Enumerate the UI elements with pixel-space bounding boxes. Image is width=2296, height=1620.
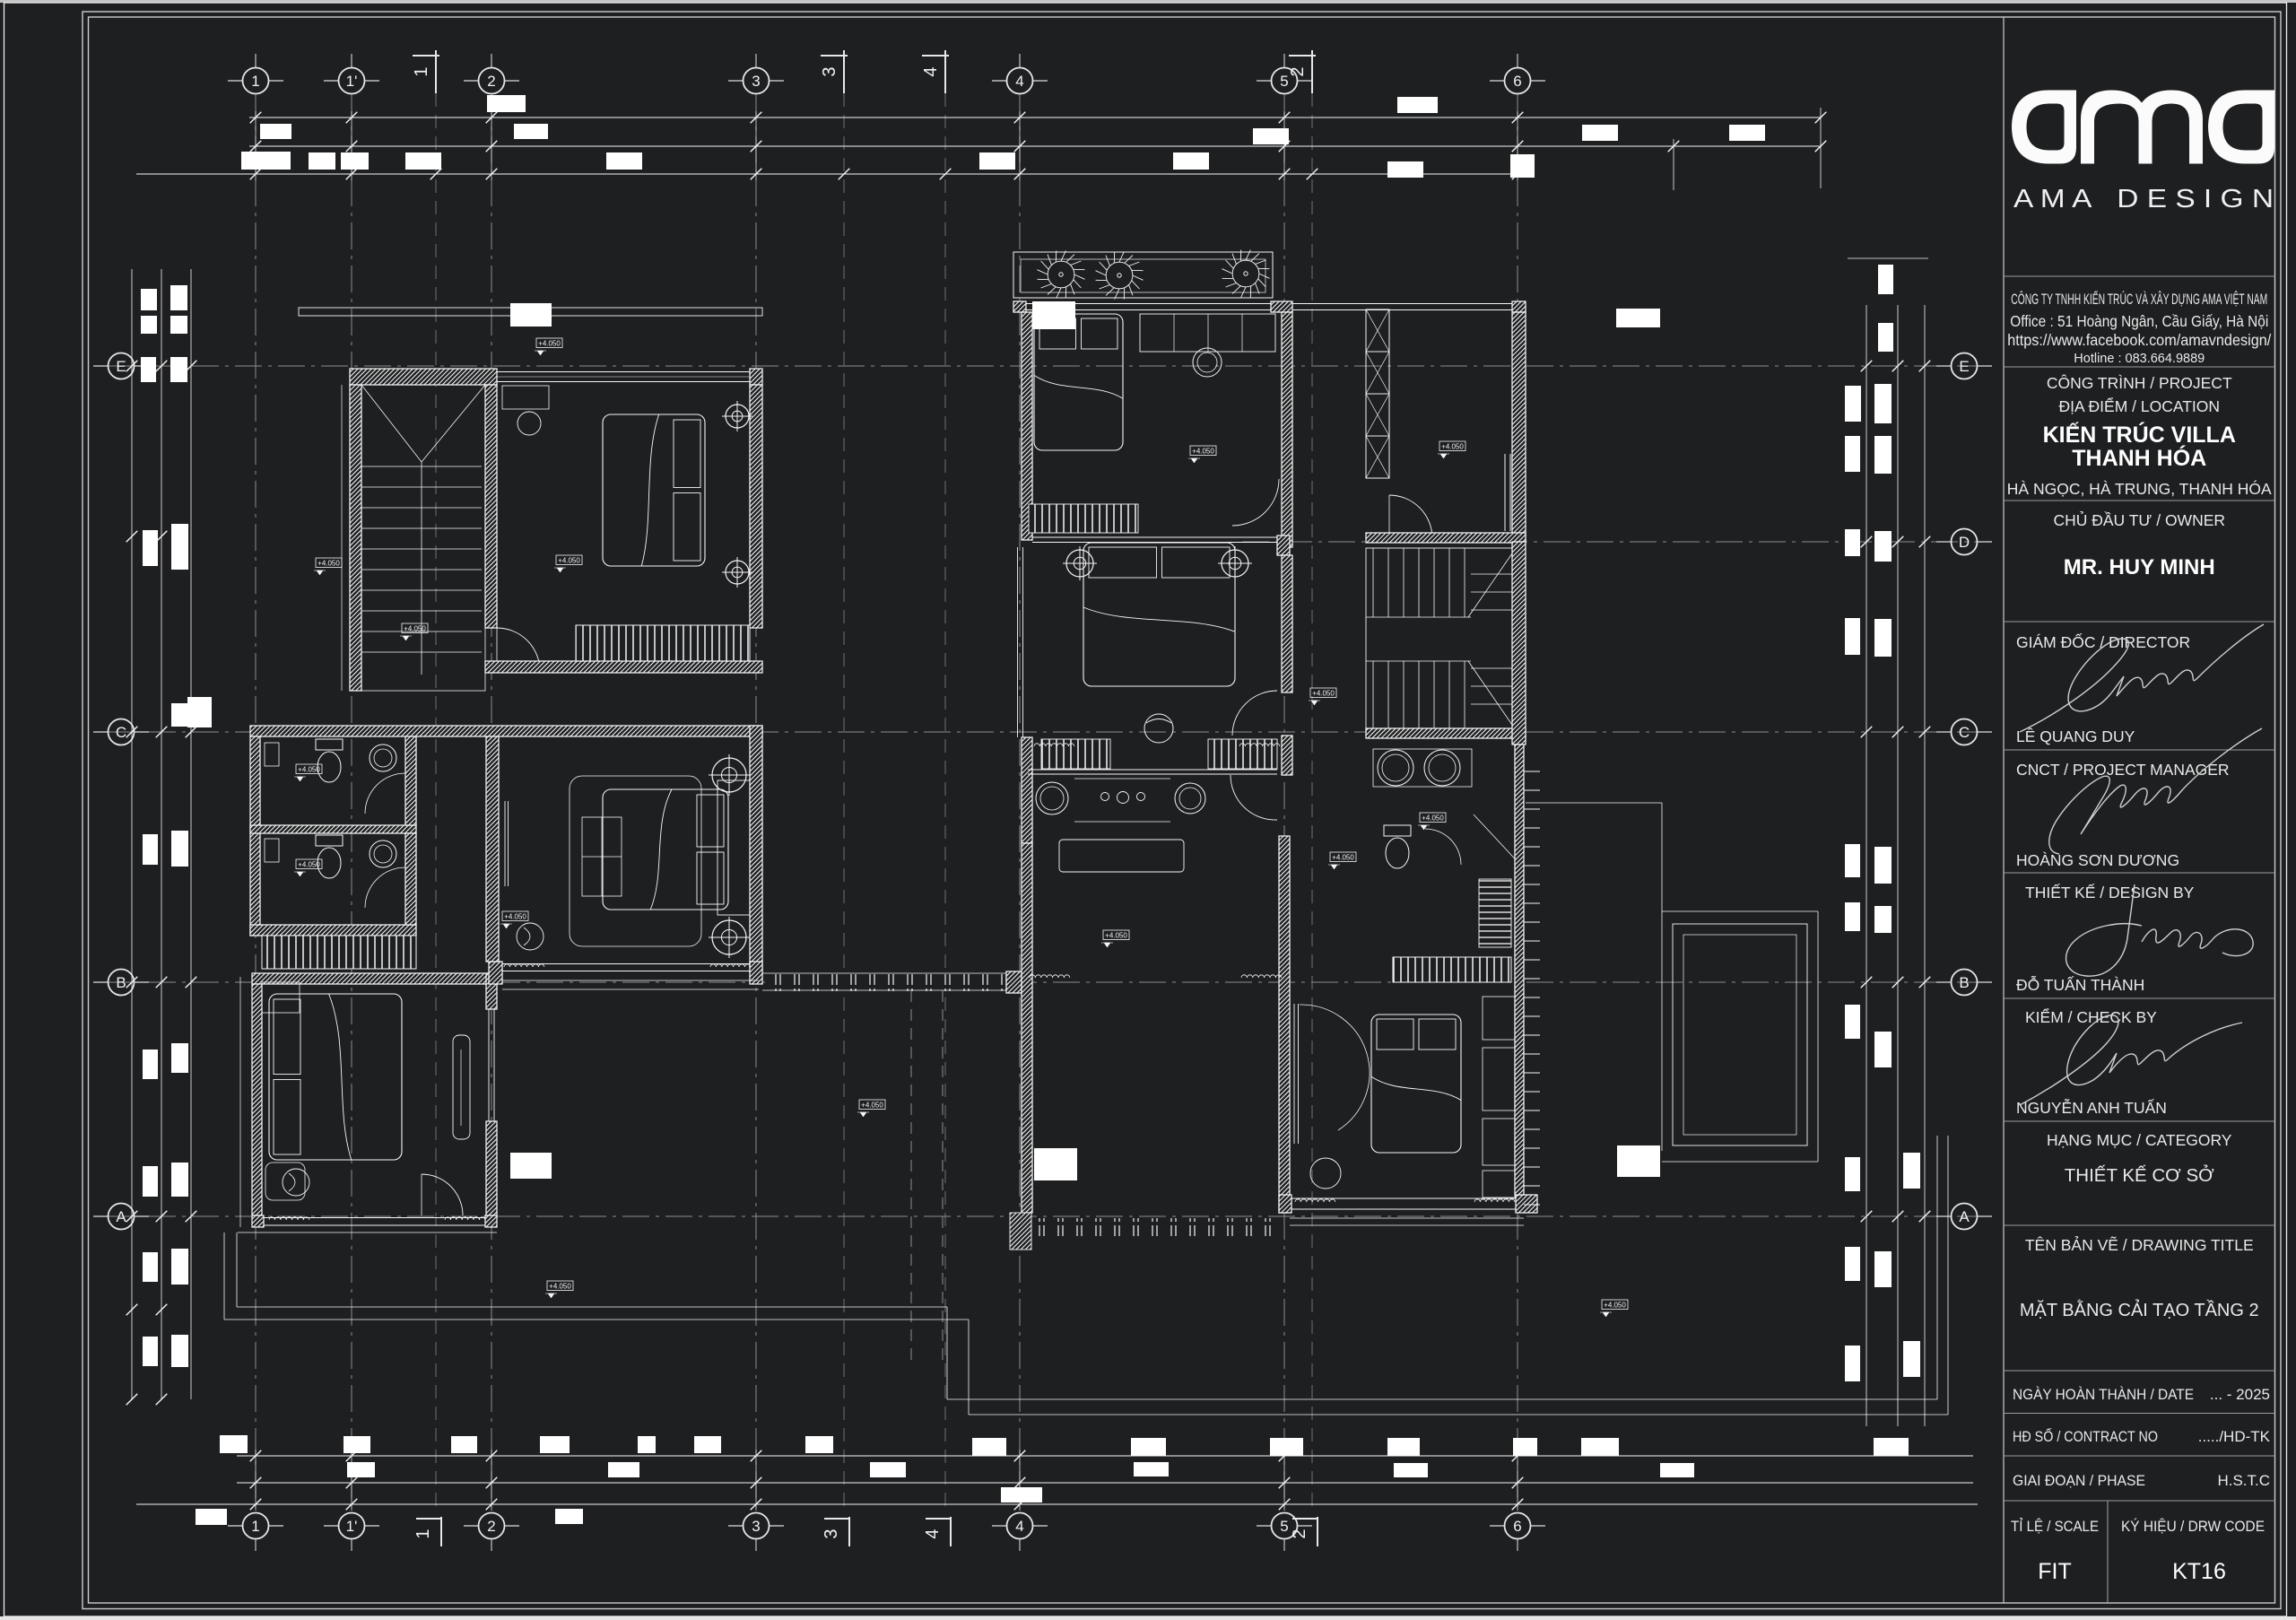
- svg-text:+4.050: +4.050: [404, 625, 426, 633]
- svg-text:C: C: [1959, 724, 1970, 741]
- svg-text:HOÀNG SƠN DƯƠNG: HOÀNG SƠN DƯƠNG: [2016, 851, 2179, 869]
- svg-text:2: 2: [487, 73, 495, 90]
- svg-text:4: 4: [1015, 73, 1023, 90]
- svg-text:https://www.facebook.com/amavn: https://www.facebook.com/amavndesign/: [2007, 331, 2271, 349]
- svg-text:5: 5: [1280, 1518, 1288, 1535]
- svg-text:1: 1: [413, 1529, 433, 1538]
- svg-text:+4.050: +4.050: [558, 557, 580, 565]
- svg-text:6: 6: [1513, 73, 1521, 90]
- svg-text:1: 1: [251, 1518, 259, 1535]
- svg-text:+4.050: +4.050: [1332, 854, 1354, 862]
- svg-text:1: 1: [412, 66, 431, 76]
- svg-text:MR. HUY MINH: MR. HUY MINH: [2064, 555, 2215, 579]
- svg-text:CÔNG TRÌNH / PROJECT: CÔNG TRÌNH / PROJECT: [2047, 373, 2232, 392]
- svg-text:CÔNG TY TNHH KIẾN TRÚC VÀ XÂY: CÔNG TY TNHH KIẾN TRÚC VÀ XÂY DỰNG AMA V…: [2011, 291, 2267, 308]
- svg-text:B: B: [1959, 974, 1969, 991]
- svg-text:Hotline : 083.664.9889: Hotline : 083.664.9889: [2074, 352, 2205, 366]
- svg-text:+4.050: +4.050: [317, 560, 340, 568]
- svg-text:CHỦ ĐẦU TƯ / OWNER: CHỦ ĐẦU TƯ / OWNER: [2053, 510, 2225, 529]
- svg-text:TÊN BẢN VẼ / DRAWING TITLE: TÊN BẢN VẼ / DRAWING TITLE: [2025, 1235, 2254, 1254]
- svg-text:E: E: [116, 358, 126, 375]
- svg-text:ĐỖ TUẤN THÀNH: ĐỖ TUẤN THÀNH: [2016, 975, 2144, 994]
- svg-text:3: 3: [752, 1518, 760, 1535]
- svg-text:HẠNG MỤC / CATEGORY: HẠNG MỤC / CATEGORY: [2047, 1131, 2232, 1149]
- svg-text:H.S.T.C: H.S.T.C: [2217, 1472, 2270, 1489]
- svg-text:GIAI ĐOẠN / PHASE: GIAI ĐOẠN / PHASE: [2013, 1472, 2145, 1489]
- svg-text:A: A: [1959, 1208, 1970, 1225]
- svg-text:NGUYỄN ANH TUẤN: NGUYỄN ANH TUẤN: [2016, 1098, 2167, 1117]
- svg-text:2: 2: [1288, 66, 1308, 76]
- svg-text:4: 4: [1015, 1518, 1023, 1535]
- svg-text:THIẾT KẾ / DESIGN BY: THIẾT KẾ / DESIGN BY: [2025, 883, 2195, 901]
- svg-text:HÀ NGỌC, HÀ TRUNG, THANH HÓA: HÀ NGỌC, HÀ TRUNG, THANH HÓA: [2007, 479, 2272, 498]
- svg-text:4: 4: [923, 1529, 943, 1538]
- svg-text:A: A: [116, 1208, 126, 1225]
- svg-text:1: 1: [251, 73, 259, 90]
- svg-text:+4.050: +4.050: [1105, 932, 1127, 940]
- svg-text:KÝ HIỆU / DRW CODE: KÝ HIỆU / DRW CODE: [2121, 1518, 2265, 1535]
- svg-text:2: 2: [1290, 1529, 1309, 1538]
- svg-text:ĐỊA ĐIỂM / LOCATION: ĐỊA ĐIỂM / LOCATION: [2058, 396, 2220, 415]
- svg-text:+4.050: +4.050: [538, 340, 561, 348]
- svg-text:3: 3: [752, 73, 760, 90]
- svg-text:TỈ LỆ / SCALE: TỈ LỆ / SCALE: [2011, 1518, 2099, 1535]
- svg-text:HĐ SỐ / CONTRACT NO: HĐ SỐ / CONTRACT NO: [2013, 1427, 2158, 1445]
- svg-text:+4.050: +4.050: [1441, 443, 1464, 451]
- svg-text:THIẾT KẾ CƠ SỞ: THIẾT KẾ CƠ SỞ: [2065, 1164, 2214, 1186]
- svg-text:D: D: [1959, 534, 1970, 551]
- svg-text:E: E: [1959, 358, 1969, 375]
- svg-text:+4.050: +4.050: [504, 913, 526, 921]
- svg-text:6: 6: [1513, 1518, 1521, 1535]
- svg-text:4: 4: [921, 66, 941, 76]
- svg-text:3: 3: [822, 1529, 841, 1538]
- svg-text:MẶT BẰNG CẢI TẠO TẦNG 2: MẶT BẰNG CẢI TẠO TẦNG 2: [2020, 1299, 2259, 1320]
- svg-text:+4.050: +4.050: [1604, 1302, 1626, 1310]
- svg-text:+4.050: +4.050: [1422, 814, 1444, 823]
- svg-text:KIỂM / CHECK BY: KIỂM / CHECK BY: [2025, 1007, 2157, 1026]
- svg-text:+4.050: +4.050: [1192, 448, 1214, 456]
- svg-text:THANH HÓA: THANH HÓA: [2072, 444, 2206, 471]
- svg-text:+4.050: +4.050: [1312, 690, 1335, 698]
- svg-text:FIT: FIT: [2038, 1559, 2072, 1584]
- svg-text:+4.050: +4.050: [298, 861, 320, 869]
- svg-text:KT16: KT16: [2172, 1559, 2226, 1584]
- svg-text:A M A D E S I G N: A M A D E S I G N: [2013, 185, 2274, 213]
- svg-text:1': 1': [346, 73, 358, 90]
- svg-text:+4.050: +4.050: [861, 1102, 883, 1110]
- svg-text:NGÀY HOÀN THÀNH / DATE: NGÀY HOÀN THÀNH / DATE: [2013, 1386, 2194, 1403]
- svg-text:+4.050: +4.050: [298, 766, 320, 774]
- svg-text:3: 3: [820, 66, 839, 76]
- svg-text:2: 2: [487, 1518, 495, 1535]
- svg-text:+4.050: +4.050: [549, 1283, 571, 1291]
- svg-text:1': 1': [346, 1518, 358, 1535]
- svg-text:GIÁM ĐỐC / DIRECTOR: GIÁM ĐỐC / DIRECTOR: [2016, 632, 2190, 651]
- svg-text:... - 2025: ... - 2025: [2210, 1386, 2270, 1403]
- svg-text:LÊ QUANG DUY: LÊ QUANG DUY: [2016, 727, 2135, 745]
- svg-text:...../HD-TK: ...../HD-TK: [2198, 1428, 2271, 1445]
- svg-text:Office : 51 Hoàng Ngân, Cầu Gi: Office : 51 Hoàng Ngân, Cầu Giấy, Hà Nội: [2010, 312, 2268, 330]
- svg-text:KIẾN TRÚC VILLA: KIẾN TRÚC VILLA: [2043, 421, 2236, 448]
- svg-text:B: B: [116, 974, 126, 991]
- svg-text:C: C: [116, 724, 126, 741]
